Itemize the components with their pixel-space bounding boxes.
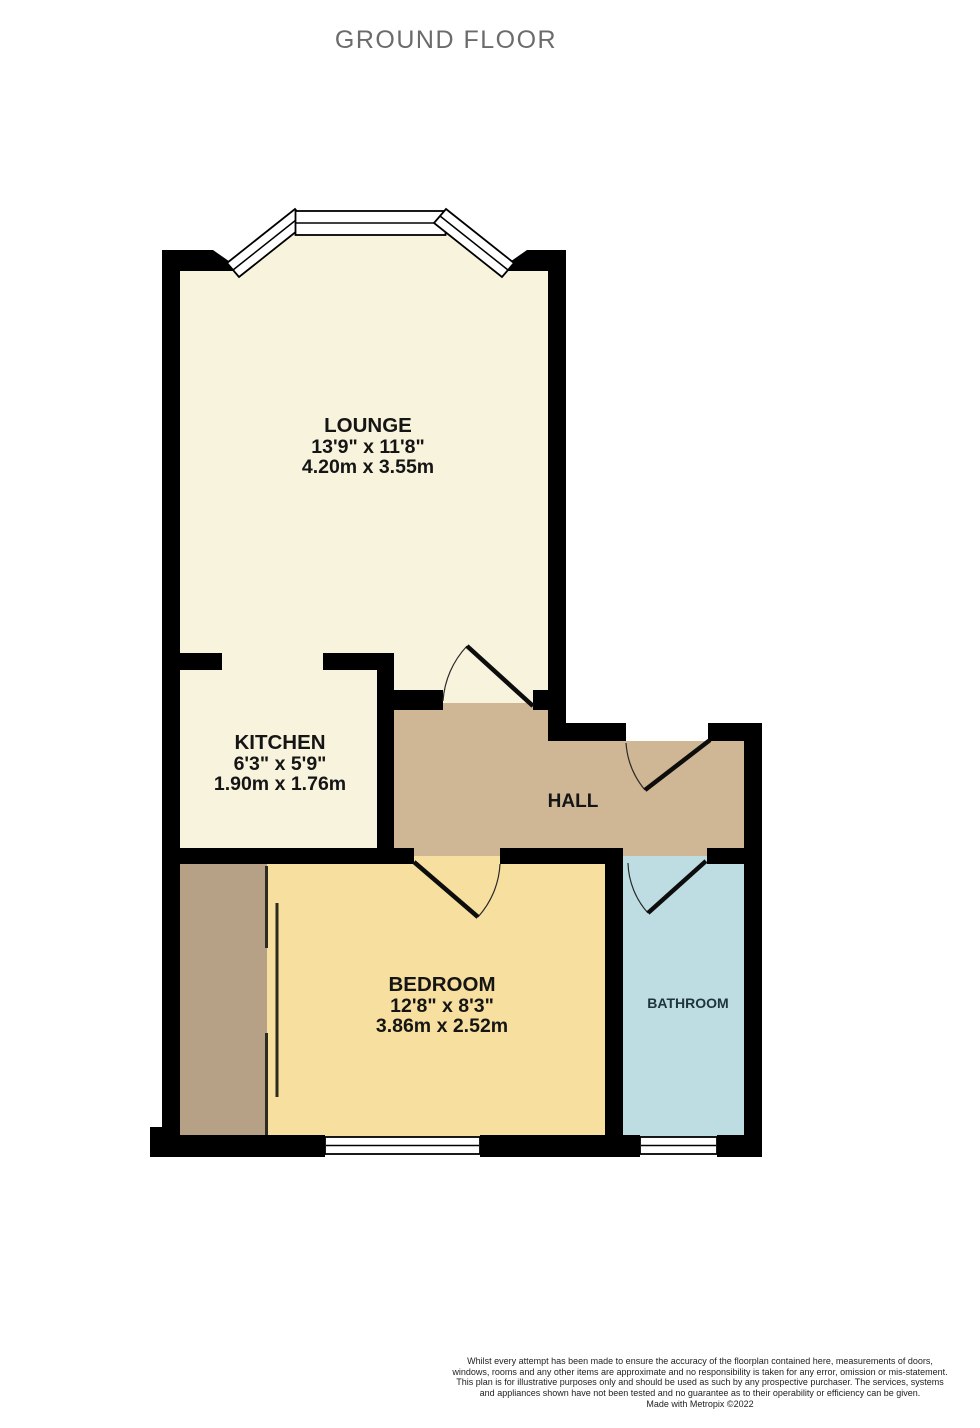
wall-bottom-left-step: [150, 1127, 180, 1157]
wall-left-exterior: [162, 250, 180, 1157]
lounge-dimensions-imperial: 13'9" x 11'8": [311, 436, 424, 458]
bathroom-label: BATHROOM: [647, 995, 728, 1011]
floorplan-page: GROUND FLOOR: [0, 0, 980, 1428]
kitchen-label: KITCHEN: [234, 731, 325, 754]
wall-right-lounge: [548, 250, 566, 741]
wall-kitchen-top-left: [162, 653, 222, 670]
bedroom-label: BEDROOM: [388, 973, 495, 996]
floorplan-drawing: LOUNGE 13'9" x 11'8" 4.20m x 3.55m KITCH…: [0, 0, 980, 1428]
lounge-label: LOUNGE: [324, 414, 412, 437]
wall-bedroom-bathroom-divider: [605, 848, 623, 1140]
bedroom-wardrobe-area: [180, 856, 267, 1140]
credit-text: Made with Metropix ©2022: [448, 1399, 953, 1410]
wall-bottom-middle: [480, 1135, 640, 1157]
wall-right-exterior: [744, 741, 762, 1157]
disclaimer-text: Whilst every attempt has been made to en…: [448, 1356, 953, 1398]
wall-bottom-right: [717, 1135, 762, 1157]
lounge-dimensions-metric: 4.20m x 3.55m: [302, 456, 434, 478]
wall-bedroom-top-right: [500, 848, 623, 864]
wall-bathroom-top-right: [707, 848, 762, 864]
bedroom-dimensions-metric: 3.86m x 2.52m: [376, 1015, 508, 1037]
kitchen-dimensions-metric: 1.90m x 1.76m: [214, 773, 346, 795]
kitchen-dimensions-imperial: 6'3" x 5'9": [234, 753, 327, 775]
wall-lounge-hall-left: [394, 690, 443, 710]
wall-lounge-hall-right: [533, 690, 566, 710]
wall-bedroom-top-left: [162, 848, 414, 864]
hall-label: HALL: [548, 791, 599, 812]
wall-entrance-right: [708, 723, 762, 741]
footer: Whilst every attempt has been made to en…: [448, 1356, 953, 1410]
bedroom-dimensions-imperial: 12'8" x 8'3": [390, 995, 494, 1017]
wall-kitchen-right: [377, 653, 394, 863]
wall-entrance-left: [566, 723, 626, 741]
